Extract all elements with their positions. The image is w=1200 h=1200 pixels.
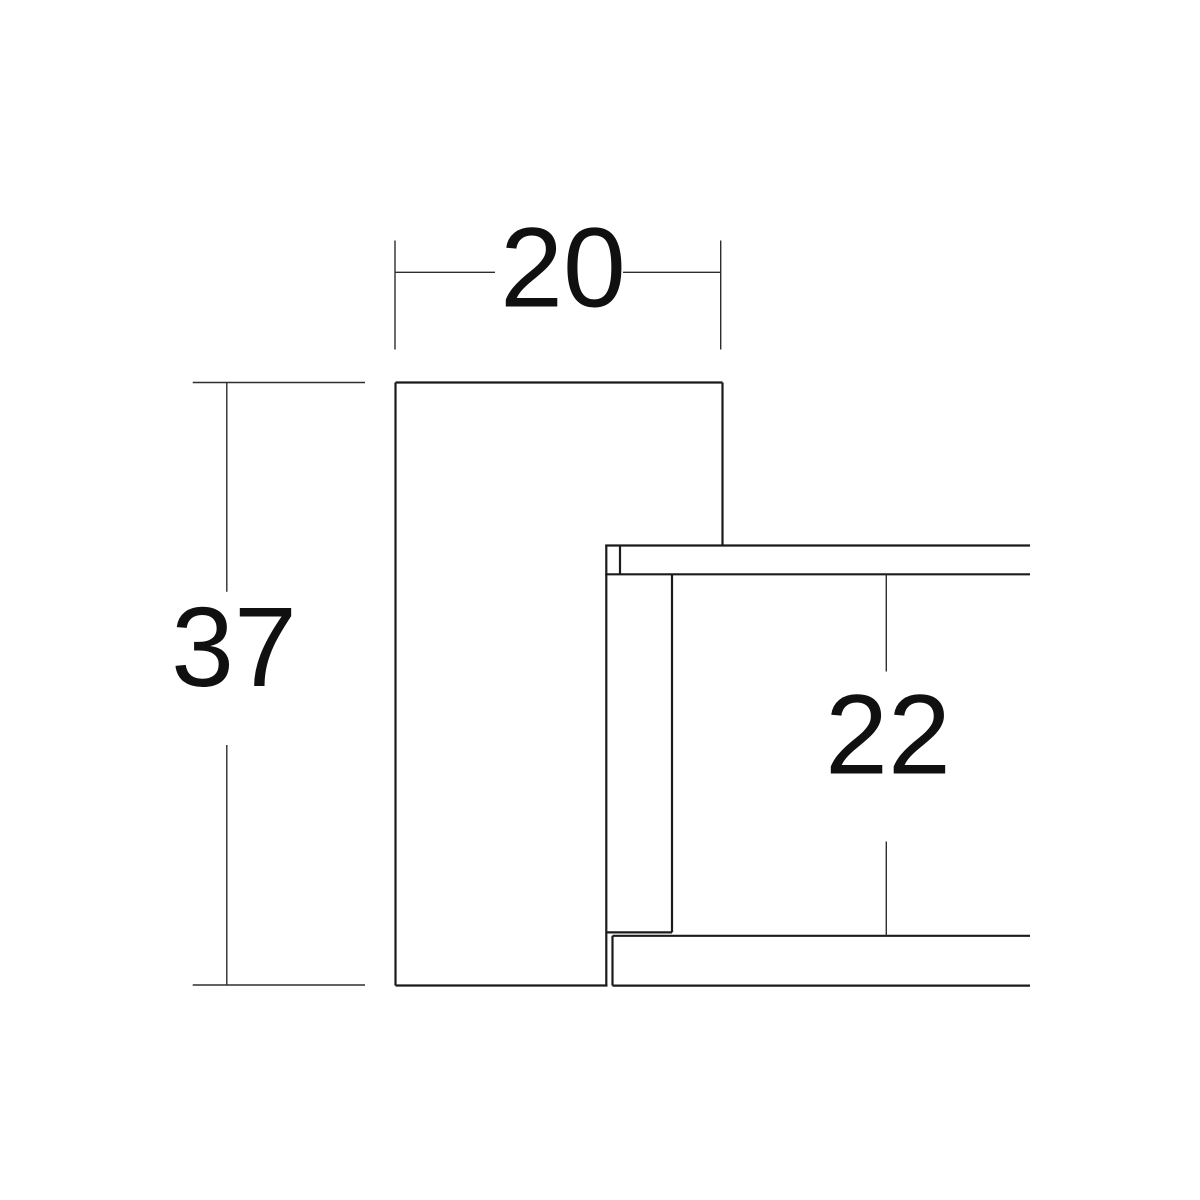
dim-label-37: 37 (171, 584, 297, 710)
drawing-page: 203722 (0, 0, 1200, 1200)
dim-label-22: 22 (825, 671, 951, 797)
dim-label-20: 20 (500, 205, 626, 331)
dimension-labels: 203722 (171, 205, 951, 798)
technical-drawing: 203722 (0, 0, 1200, 1200)
